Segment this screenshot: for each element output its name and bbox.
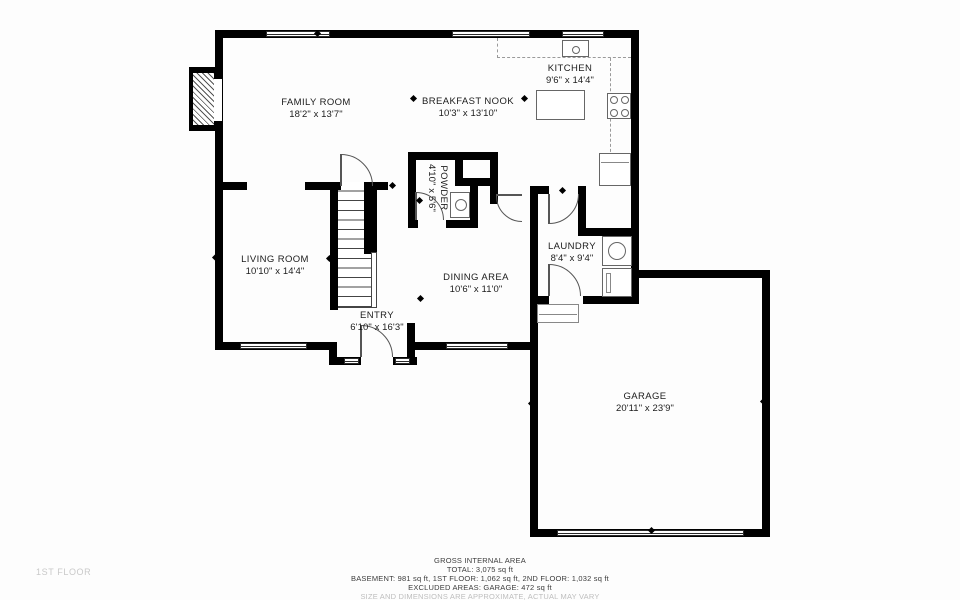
room-dims: 10'3" x 13'10" (422, 108, 514, 120)
room-label-powder: POWDER 4'10" x 5'6" (425, 164, 449, 212)
room-label-breakfast-nook: BREAKFAST NOOK 10'3" x 13'10" (422, 96, 514, 120)
sidelite-right (395, 358, 410, 364)
door-leaf (340, 154, 342, 186)
room-name: DINING AREA (443, 272, 509, 284)
burner (621, 96, 629, 104)
room-dims: 9'6" x 14'4" (546, 75, 594, 87)
fireplace-opening (214, 79, 222, 121)
refrigerator (599, 153, 631, 186)
garage-step-landing (537, 304, 579, 323)
fireplace-hatch (193, 73, 214, 125)
wall (330, 182, 338, 310)
room-name: BREAKFAST NOOK (422, 96, 514, 108)
door-swing (496, 196, 522, 222)
room-dims: 20'11" x 23'9" (616, 403, 674, 415)
burner (621, 109, 629, 117)
kitchen-sink (562, 40, 589, 57)
total-area: TOTAL: 3,075 sq ft (0, 565, 960, 574)
door-leaf (415, 192, 417, 220)
dimension-tick (559, 187, 566, 194)
door-leaf (496, 194, 522, 196)
door-swing (341, 154, 373, 186)
washer (602, 236, 632, 266)
stair-railing (371, 252, 377, 308)
floor-label: 1ST FLOOR (36, 567, 91, 577)
fridge-divider (601, 162, 629, 163)
room-name: LIVING ROOM (241, 254, 309, 266)
kitchen-island (536, 90, 585, 120)
dryer-door (606, 273, 611, 293)
wall (530, 296, 549, 304)
room-label-dining-area: DINING AREA 10'6" x 11'0" (443, 272, 509, 296)
window-breakfast-nook (452, 31, 530, 37)
dimension-tick (410, 95, 417, 102)
room-label-living-room: LIVING ROOM 10'10" x 14'4" (241, 254, 309, 278)
room-label-entry: ENTRY 6'10" x 16'3" (350, 310, 403, 334)
burner (610, 96, 618, 104)
wall (631, 30, 639, 304)
laundry-door-arc (549, 194, 579, 224)
wall (446, 220, 478, 228)
window-kitchen-sink (562, 31, 604, 37)
door-swing (549, 194, 579, 224)
wall (408, 152, 497, 160)
powder-vanity (450, 192, 470, 218)
dimension-tick (417, 295, 424, 302)
dryer (602, 268, 632, 297)
glazing-line (453, 34, 529, 35)
room-name: FAMILY ROOM (281, 97, 351, 109)
floor-plan: FAMILY ROOM 18'2" x 13'7" BREAKFAST NOOK… (0, 0, 960, 600)
laundry-garage-door-arc (549, 264, 581, 296)
burner (610, 109, 618, 117)
room-label-garage: GARAGE 20'11" x 23'9" (616, 391, 674, 415)
wall (408, 220, 418, 228)
wall (364, 182, 377, 254)
wall (215, 122, 223, 350)
room-label-family-room: FAMILY ROOM 18'2" x 13'7" (281, 97, 351, 121)
wall (530, 186, 549, 194)
room-dims: 10'6" x 11'0" (443, 284, 509, 296)
sidelite-left (344, 358, 359, 364)
window-dining-area (446, 343, 508, 349)
fireplace (189, 67, 223, 131)
gross-internal-area-title: GROSS INTERNAL AREA (0, 556, 960, 565)
wall (530, 186, 538, 537)
window-living-room (240, 343, 307, 349)
dimension-tick (521, 95, 528, 102)
door-leaf (548, 194, 550, 224)
glazing-line (563, 34, 603, 35)
room-dims: 18'2" x 13'7" (281, 109, 351, 121)
floor-areas: BASEMENT: 981 sq ft, 1ST FLOOR: 1,062 sq… (0, 574, 960, 583)
area-summary: GROSS INTERNAL AREA TOTAL: 3,075 sq ft B… (0, 556, 960, 600)
stove (607, 93, 631, 119)
glazing-line (447, 346, 507, 347)
hall-closet-door-arc (496, 196, 522, 222)
door-leaf (548, 264, 550, 296)
wall (215, 182, 247, 190)
landing-step-line (539, 314, 577, 315)
disclaimer: SIZE AND DIMENSIONS ARE APPROXIMATE, ACT… (0, 592, 960, 600)
dimension-tick (389, 182, 396, 189)
powder-basin (455, 199, 467, 211)
wall (578, 228, 639, 236)
door-swing (549, 264, 581, 296)
room-name: ENTRY (350, 310, 403, 322)
room-dims: 8'4" x 9'4" (548, 253, 596, 265)
washer-drum (608, 242, 626, 260)
room-label-laundry: LAUNDRY 8'4" x 9'4" (548, 241, 596, 265)
excluded-areas: EXCLUDED AREAS: GARAGE: 472 sq ft (0, 583, 960, 592)
room-name: KITCHEN (546, 63, 594, 75)
room-name: GARAGE (616, 391, 674, 403)
room-name: LAUNDRY (548, 241, 596, 253)
room-label-kitchen: KITCHEN 9'6" x 14'4" (546, 63, 594, 87)
sink-basin (572, 46, 580, 54)
room-name: POWDER (437, 164, 449, 212)
room-dims: 6'10" x 16'3" (350, 322, 403, 334)
glazing-line (396, 361, 409, 362)
wall (372, 182, 388, 190)
glazing-line (241, 346, 306, 347)
wall (638, 270, 770, 278)
family-room-door-arc (341, 154, 373, 186)
glazing-line (345, 361, 358, 362)
room-dims: 10'10" x 14'4" (241, 266, 309, 278)
room-dims: 4'10" x 5'6" (425, 164, 437, 212)
wall (583, 296, 639, 304)
